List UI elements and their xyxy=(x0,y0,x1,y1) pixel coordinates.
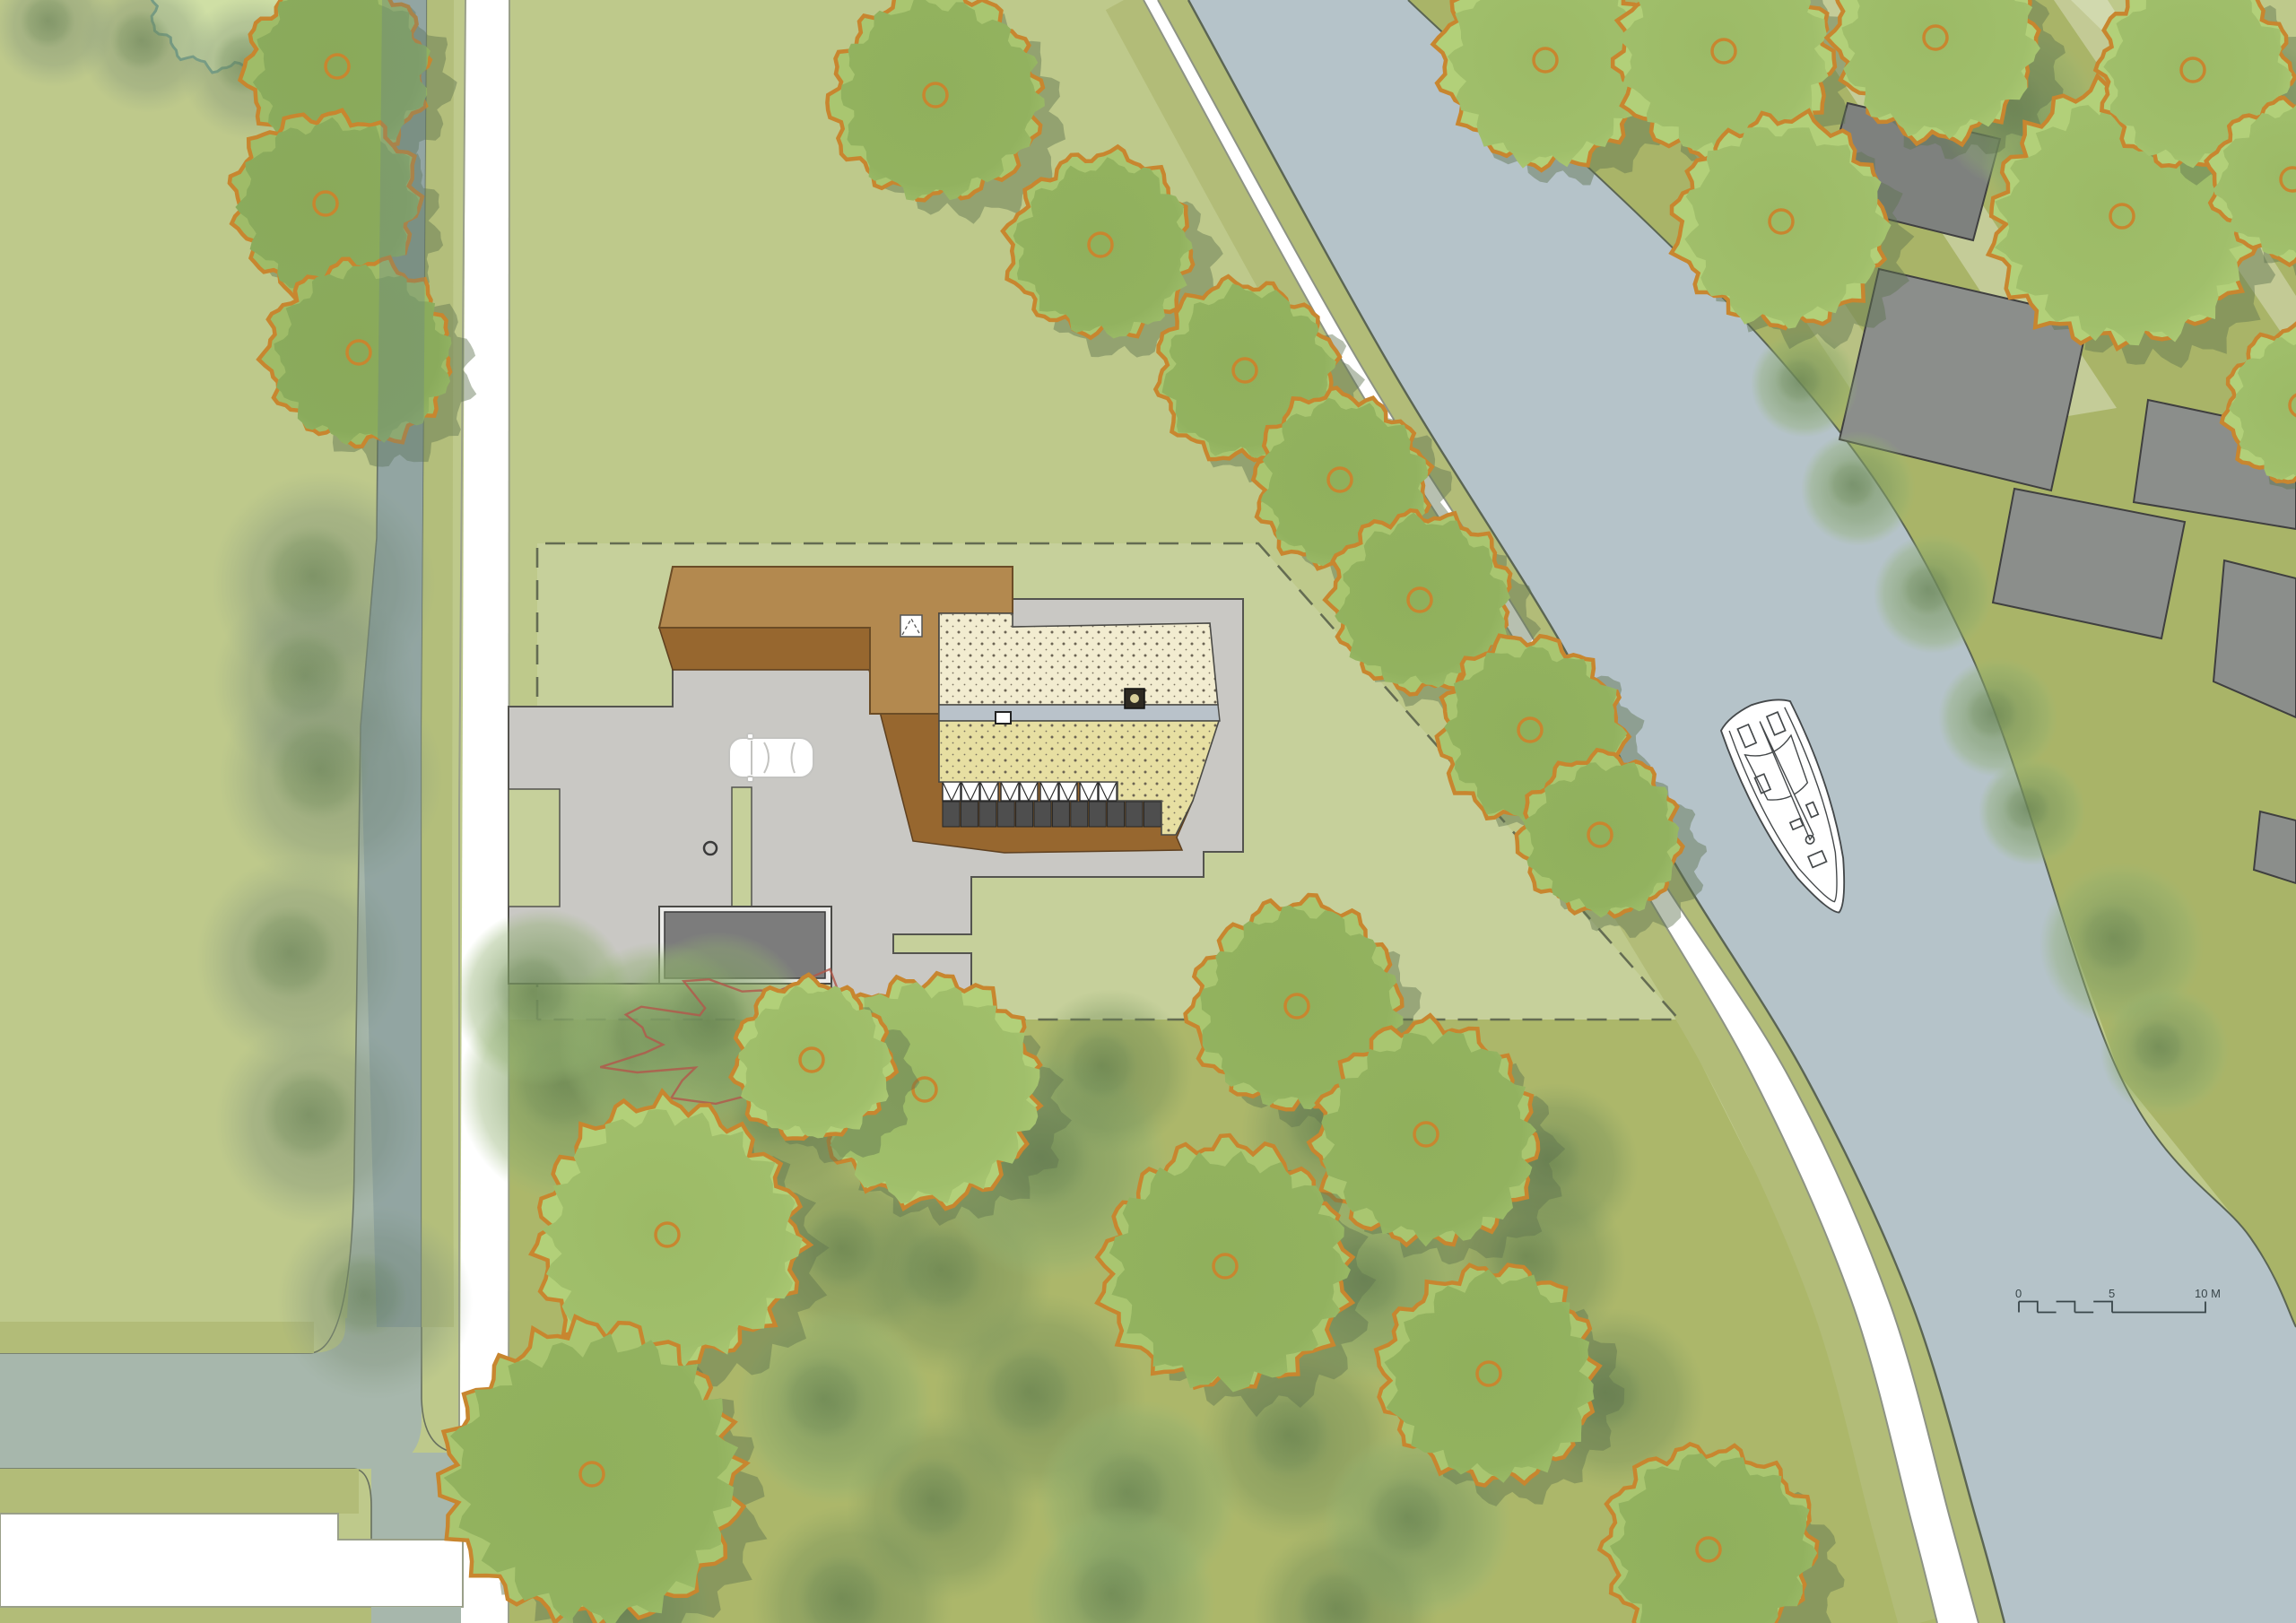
svg-text:0: 0 xyxy=(2015,1287,2022,1300)
svg-text:5: 5 xyxy=(2109,1287,2115,1300)
svg-text:10 M: 10 M xyxy=(2195,1287,2221,1300)
